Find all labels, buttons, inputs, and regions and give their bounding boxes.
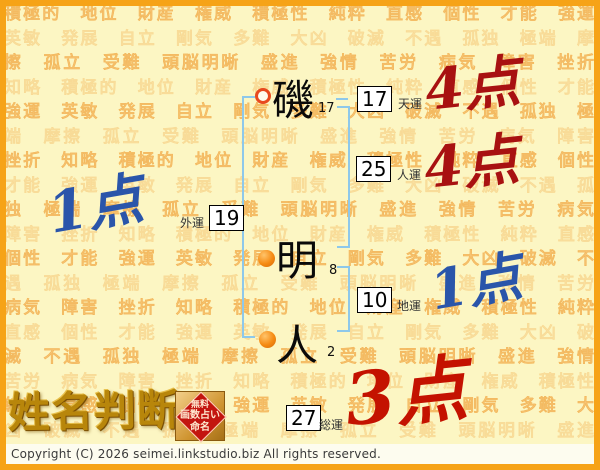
char-marker-dot-icon [259, 331, 276, 348]
bracket-chiun-tick-top [337, 266, 350, 268]
bracket-jinun-tick-top [337, 106, 350, 108]
fortune-label-souun: 総運 [319, 416, 343, 433]
free-kazu-uranai-stamp[interactable]: 無料 画数占い 命名 [175, 391, 225, 441]
score-gaiun: 1点 [44, 170, 147, 242]
char-marker-dot-icon [258, 250, 275, 267]
stamp-text: 無料 画数占い 命名 [176, 392, 224, 440]
site-logo[interactable]: 姓名判断 [8, 385, 181, 440]
copyright-text: Copyright (C) 2026 seimei.linkstudio.biz… [11, 447, 381, 461]
fortune-box-chiun: 10 [357, 287, 392, 313]
score-jinun: 4点 [421, 131, 521, 197]
name-char-2: 明 [276, 240, 318, 282]
stamp-line-2: 画数占い [180, 410, 220, 422]
bracket-chiun-tick-bottom [337, 330, 350, 332]
char-marker-ring-icon [255, 88, 271, 104]
stroke-count-3: 2 [327, 345, 335, 360]
name-char-1: 磯 [272, 80, 314, 122]
score-souun: 3点 [342, 352, 471, 436]
stroke-count-2: 8 [329, 263, 337, 278]
score-chiun: 1点 [426, 248, 526, 317]
stamp-line-3: 命名 [190, 422, 210, 433]
bracket-chiun-line [348, 266, 350, 332]
seimei-result-page: 積極的 地位 財産 権威 積極性 純粋 直感 個性 才能 強運 英敏 発展 自立… [0, 0, 600, 470]
fortune-box-souun: 27 [286, 405, 321, 431]
bracket-gaiun-tick-top [242, 96, 255, 98]
fortune-label-chiun: 地運 [397, 297, 421, 314]
bracket-tenun-dash [336, 98, 348, 100]
score-tenun: 4点 [422, 53, 522, 119]
bracket-jinun-tick-bottom [337, 246, 350, 248]
fortune-label-jinun: 人運 [397, 166, 421, 183]
footer-strip: Copyright (C) 2026 seimei.linkstudio.biz… [6, 444, 594, 464]
stroke-count-1: 17 [318, 101, 335, 116]
fortune-label-gaiun: 外運 [180, 214, 204, 231]
fortune-box-jinun: 25 [356, 156, 391, 182]
bracket-jinun-line [348, 106, 350, 248]
name-char-3: 人 [276, 325, 318, 367]
fortune-box-tenun: 17 [357, 86, 392, 112]
stamp-line-1: 無料 [191, 400, 209, 410]
fortune-label-tenun: 天運 [398, 95, 422, 112]
fortune-box-gaiun: 19 [209, 205, 244, 231]
bracket-gaiun-tick-bottom [242, 336, 255, 338]
